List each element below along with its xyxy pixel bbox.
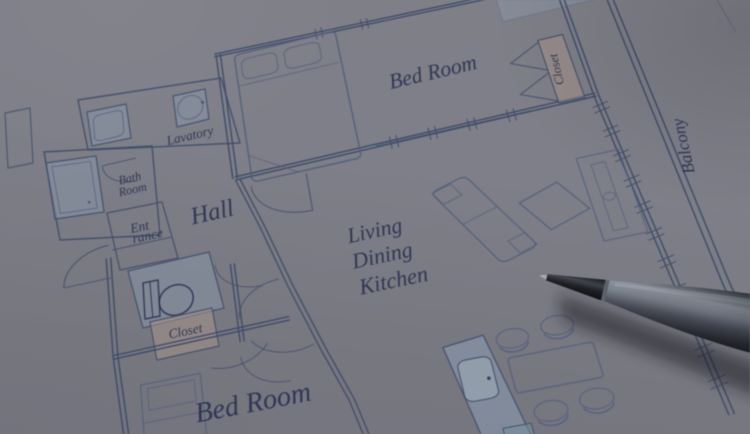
svg-text:Bed Room: Bed Room xyxy=(192,377,313,430)
svg-text:Ent: Ent xyxy=(128,217,152,236)
svg-text:Hall: Hall xyxy=(187,195,237,231)
svg-text:Bath: Bath xyxy=(117,169,142,188)
svg-text:Closet: Closet xyxy=(167,320,204,342)
svg-text:Closet: Closet xyxy=(546,52,567,87)
svg-text:rance: rance xyxy=(131,225,164,246)
svg-text:Kitchen: Kitchen xyxy=(356,261,430,300)
svg-text:Living: Living xyxy=(344,213,404,248)
svg-text:Balcony: Balcony xyxy=(668,116,699,175)
svg-text:Dining: Dining xyxy=(349,237,415,274)
svg-text:Bed Room: Bed Room xyxy=(387,50,479,94)
svg-text:Room: Room xyxy=(116,179,148,199)
svg-text:Lavatory: Lavatory xyxy=(164,123,215,149)
